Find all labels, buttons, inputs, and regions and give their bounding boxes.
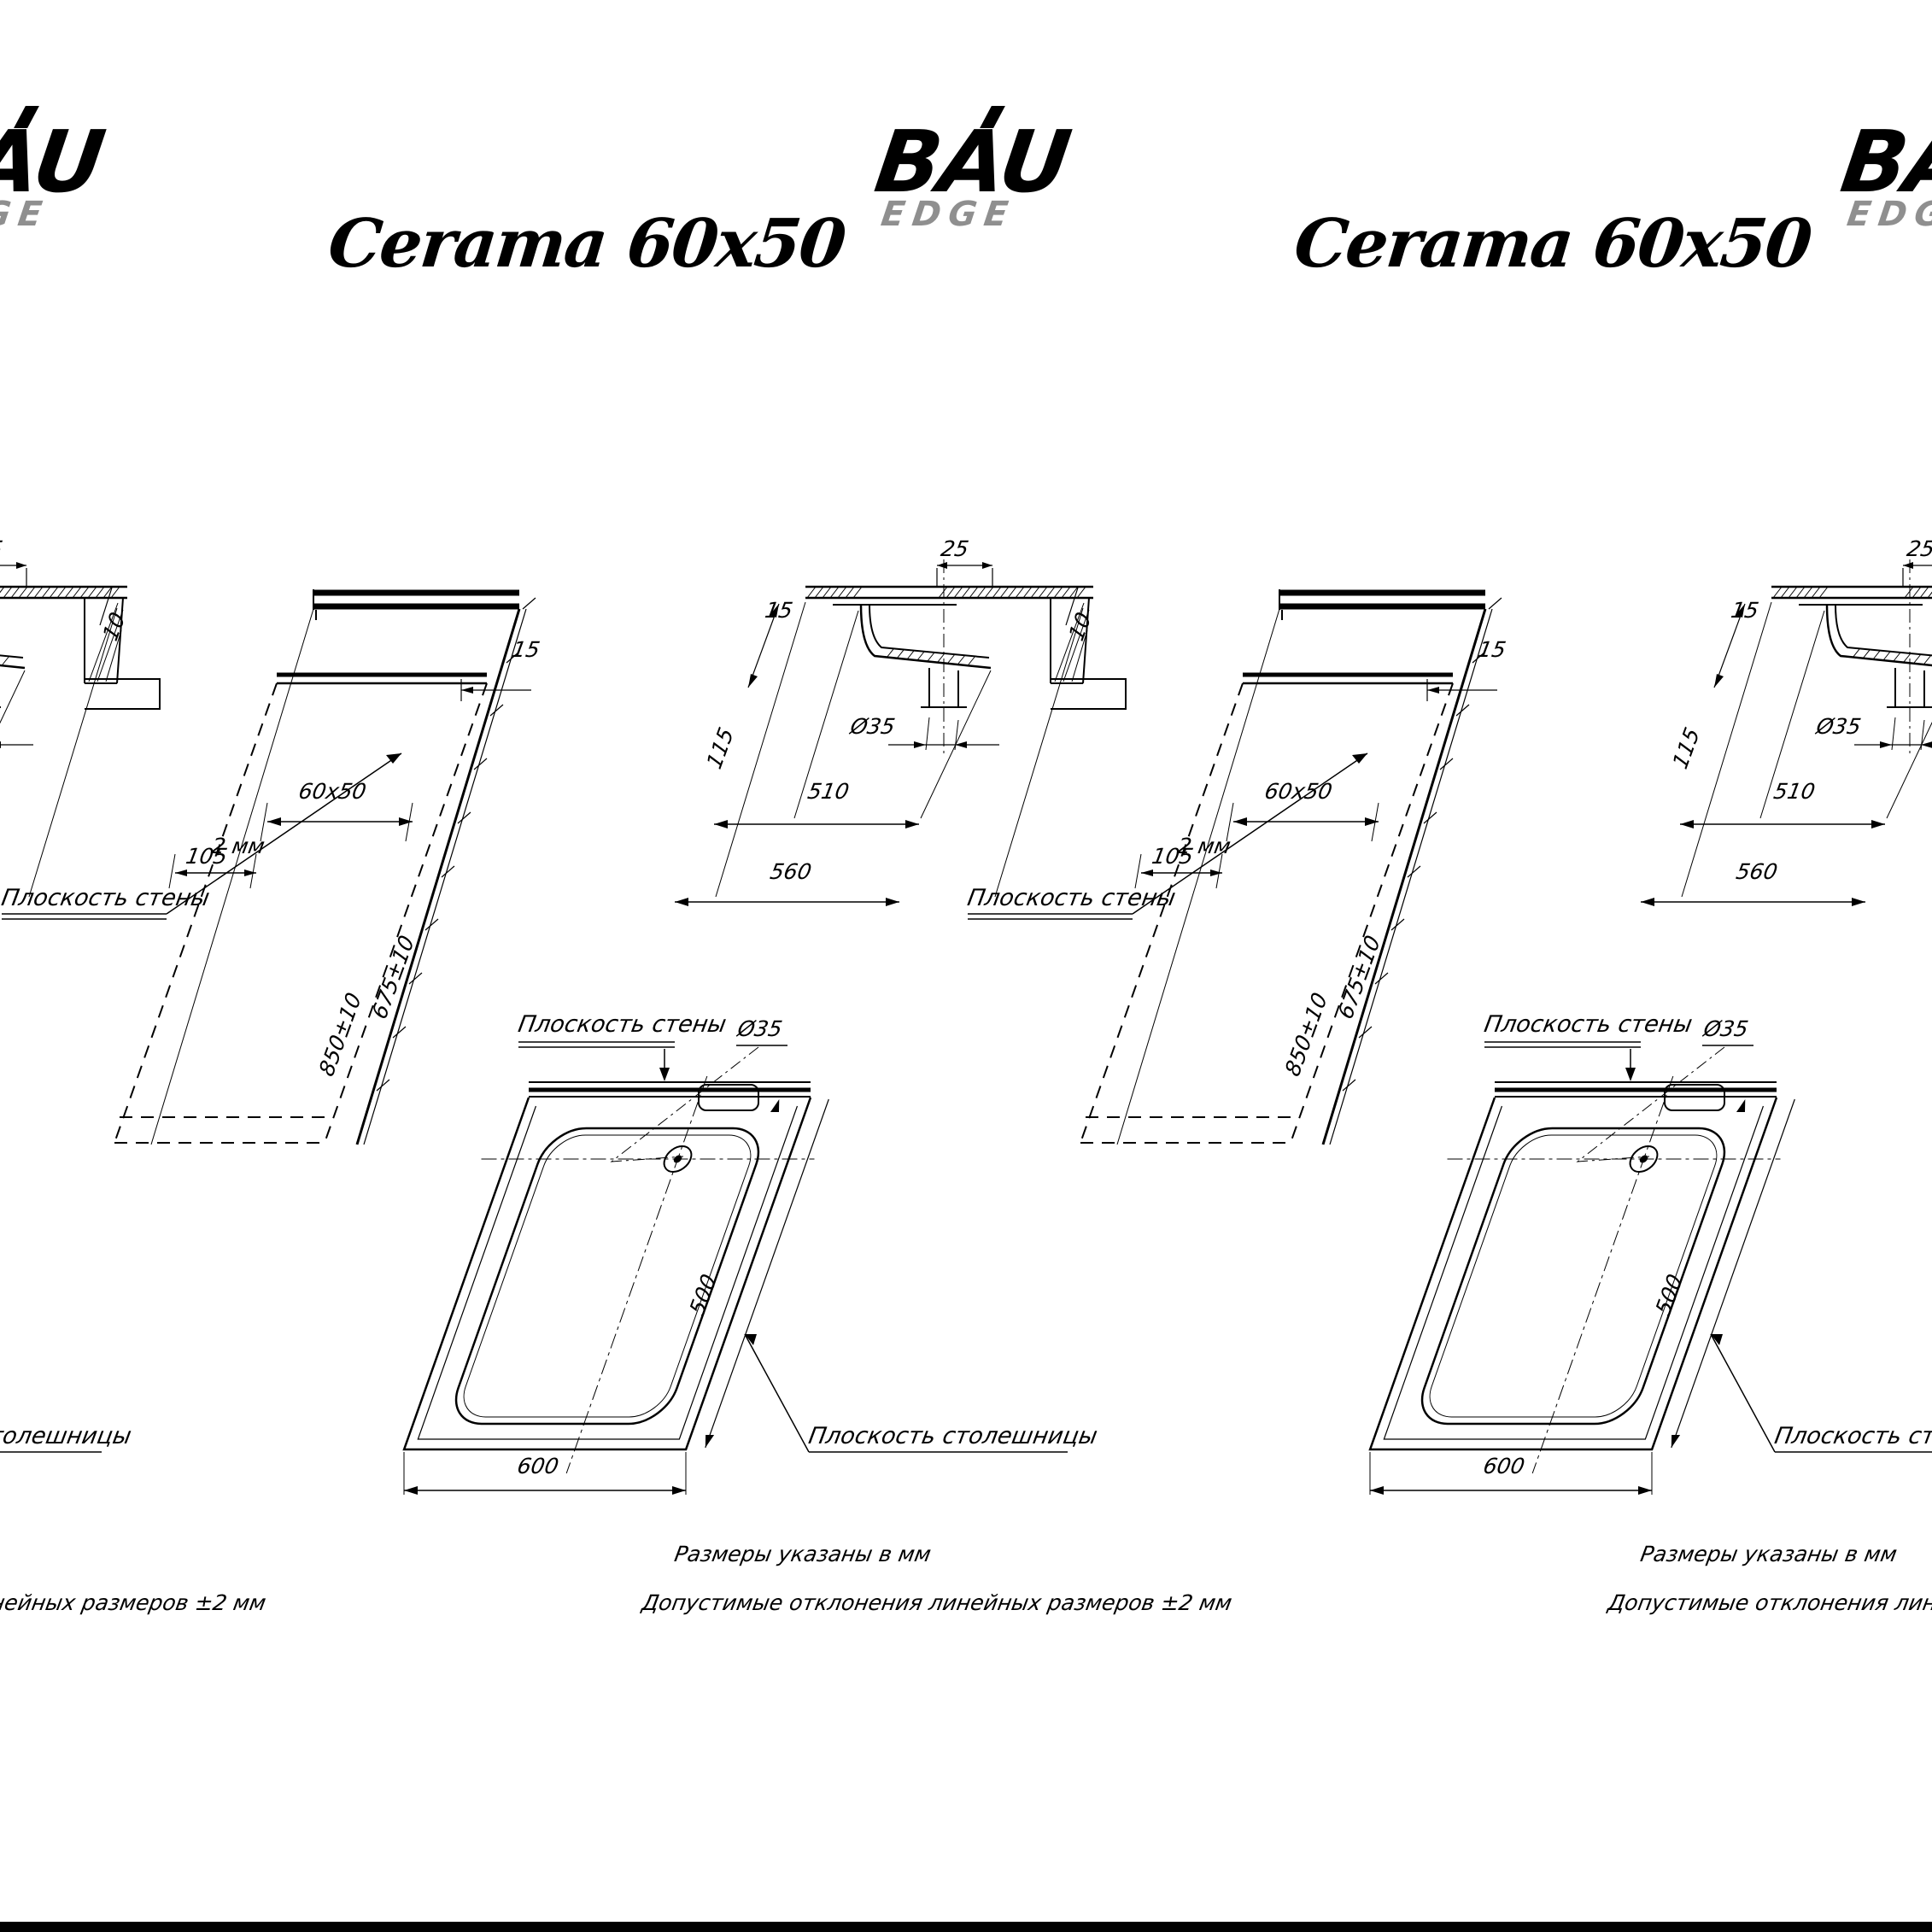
side-ledge-dim: 105 [184, 844, 229, 869]
brand-logo: BAU EDGE [0, 120, 115, 234]
brand-logo: BAU EDGE [1842, 120, 1932, 234]
spec-page: BAU EDGE Cerama 60x50 60х50 2 мм 105 15 … [966, 0, 1932, 1932]
machine-outline [114, 683, 487, 1143]
side-ledge-dim: 105 [1150, 844, 1195, 869]
centerlines [1336, 1076, 1810, 1473]
basin-rim-side [313, 593, 519, 606]
side-width-dim: 60х50 [296, 779, 368, 804]
wall-hatch [377, 598, 536, 1091]
wall-plane-label-top: Плоскость стены [516, 1011, 728, 1038]
section-top-dim: 25 [1905, 536, 1932, 561]
section-bowl-width-dim: 510 [1771, 779, 1817, 804]
bowl-profile [1827, 605, 1932, 668]
wall-plane-label-top: Плоскость стены [1482, 1011, 1694, 1038]
section-left-top-dim: 15 [1729, 598, 1760, 623]
top-drain-dim: Ø35 [735, 1016, 784, 1041]
note-units: Размеры указаны в мм [1638, 1542, 1899, 1566]
section-drain-dim: Ø35 [1814, 714, 1863, 739]
wall-plane-label-side: Плоскость стены [965, 885, 1177, 911]
bowl-outline [446, 1128, 770, 1424]
note-units: Размеры указаны в мм [672, 1542, 933, 1566]
body-outline [1370, 1098, 1777, 1449]
centerlines [370, 1076, 844, 1473]
wall-line [1323, 609, 1485, 1145]
side-edge-dim: 15 [510, 637, 542, 662]
top-width-dim: 600 [515, 1454, 560, 1478]
brand-logo-subtext: EDGE [1845, 195, 1932, 234]
wall-hatch [1343, 598, 1502, 1091]
bowl-outline [1412, 1128, 1736, 1424]
drain-leader [612, 1047, 758, 1162]
footer-bar [0, 1922, 1932, 1932]
technical-drawing [966, 0, 1932, 1932]
top-width-dim: 600 [1481, 1454, 1526, 1478]
drain-leader [1578, 1047, 1724, 1162]
wall-line [357, 609, 519, 1145]
rim-inner [418, 1106, 797, 1439]
slab-hatch-left [1773, 587, 1828, 598]
rim-inner [1384, 1106, 1763, 1439]
slab-hatch-left [807, 587, 862, 598]
countertop-plane-label: Плоскость столешницы [1772, 1423, 1932, 1449]
spec-sheet-canvas: BAU EDGE Cerama 60x50 60х50 2 мм 105 15 … [0, 0, 1932, 1932]
section-cutout-width-dim: 560 [1734, 859, 1779, 884]
body-outline [404, 1098, 811, 1449]
brand-logo-subtext: EDGE [0, 195, 118, 234]
sheet-title: Cerama 60x50 [1291, 205, 1736, 283]
side-edge-dim: 15 [1476, 637, 1508, 662]
side-view [968, 589, 1502, 1145]
note-tolerance: Допустимые отклонения линейных размеров … [1606, 1590, 1932, 1615]
section-drain-dim: Ø35 [848, 714, 897, 739]
side-width-dim: 60х50 [1262, 779, 1334, 804]
brand-logo-text: BAU [870, 120, 1087, 205]
section-cutout-width-dim: 560 [768, 859, 813, 884]
sheet-title: Cerama 60x50 [325, 205, 770, 283]
section-left-top-dim: 15 [763, 598, 794, 623]
slab-hatch-right [1905, 587, 1932, 598]
wall-plane-label-side: Плоскость стены [0, 885, 212, 911]
side-view [2, 589, 536, 1145]
brand-logo: BAU EDGE [876, 120, 1081, 234]
section-bowl-width-dim: 510 [805, 779, 851, 804]
brand-logo-text: BAU [0, 120, 121, 205]
brand-logo-subtext: EDGE [879, 195, 1084, 234]
brand-logo-text: BAU [1836, 120, 1932, 205]
basin-rim-side [1279, 593, 1485, 606]
top-drain-dim: Ø35 [1701, 1016, 1750, 1041]
machine-outline [1080, 683, 1453, 1143]
